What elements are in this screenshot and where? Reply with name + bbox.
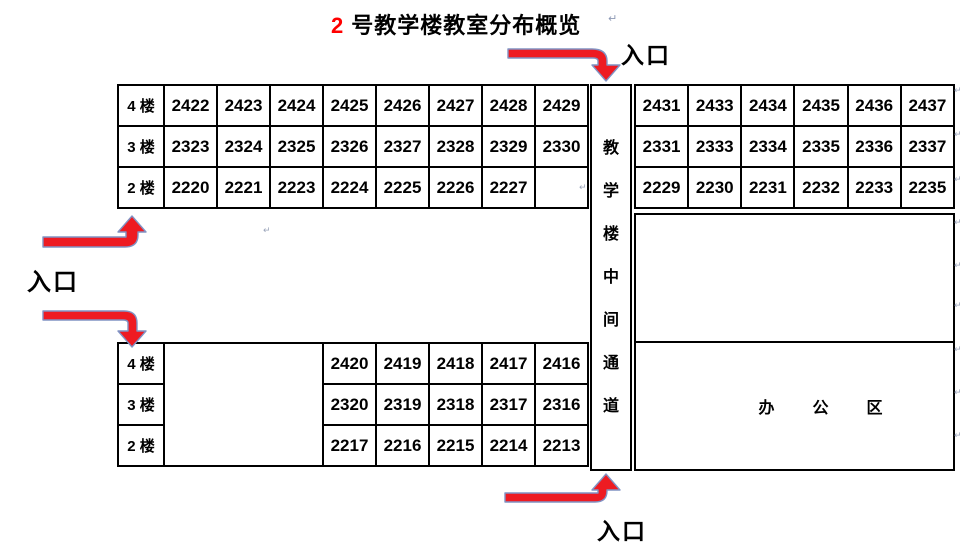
room-cell: 2428 [482,85,535,126]
room-cell: 2427 [429,85,482,126]
room-cell: 2326 [323,126,376,167]
paragraph-mark-icon: ↵ [954,302,962,311]
room-cell: 2336 [848,126,901,167]
room-cell: 2437 [901,85,954,126]
room-cell: 2418 [429,343,482,384]
entrance-label-left: 入口 [27,262,79,297]
room-cell: 2337 [901,126,954,167]
office-char: 公 [812,394,828,418]
entrance-label-bottom: 入口 [597,512,647,546]
page-title: 2号教学楼教室分布概览 [331,8,581,40]
room-cell: 2217 [323,425,376,466]
title-text: 号教学楼教室分布概览 [351,13,581,38]
office-area-box: 办 公 区 [634,341,955,471]
floor-label: 3 楼 [118,126,164,167]
room-cell: 2334 [741,126,794,167]
room-cell: 2419 [376,343,429,384]
room-cell: 2422 [164,85,217,126]
room-cell: 2227 [482,167,535,208]
room-cell: 2328 [429,126,482,167]
room-cell: 2329 [482,126,535,167]
room-cell: 2416 [535,343,588,384]
floor-label: 2 楼 [118,425,164,466]
room-cell: 2317 [482,384,535,425]
room-cell: 2231 [741,167,794,208]
room-cell: 2215 [429,425,482,466]
room-cell: 2323 [164,126,217,167]
room-cell: 2433 [688,85,741,126]
room-cell: 2225 [376,167,429,208]
title-building-number: 2 [331,13,344,38]
paragraph-mark-icon: ↵ [954,87,962,96]
entrance-arrow-top-icon [508,49,620,81]
corridor-char: 道 [603,385,619,428]
corridor-char: 间 [603,299,619,342]
room-cell: 2324 [217,126,270,167]
corridor-char: 楼 [603,213,619,256]
floor-label: 3 楼 [118,384,164,425]
table-row: 2 楼 2220 2221 2223 2224 2225 2226 2227 [118,167,588,208]
room-cell: 2318 [429,384,482,425]
table-row: 4 楼 2420 2419 2418 2417 2416 [118,343,588,384]
top-left-room-table: 4 楼 2422 2423 2424 2425 2426 2427 2428 2… [117,84,589,209]
office-char: 区 [867,394,883,418]
paragraph-mark-icon: ↵ [608,13,617,24]
paragraph-mark-icon: ↵ [954,131,962,140]
floor-label: 2 楼 [118,167,164,208]
room-cell: 2417 [482,343,535,384]
table-row: 2331 2333 2334 2335 2336 2337 [635,126,954,167]
room-cell: 2431 [635,85,688,126]
room-cell: 2436 [848,85,901,126]
floor-label: 4 楼 [118,343,164,384]
room-cell: 2320 [323,384,376,425]
room-cell: 2233 [848,167,901,208]
corridor-char: 教 [603,127,619,170]
paragraph-mark-icon: ↵ [954,176,962,185]
classroom-map-canvas: 2号教学楼教室分布概览 ↵ 入口 入口 入口 4 楼 2422 2423 242… [0,0,962,548]
room-cell: 2221 [217,167,270,208]
room-cell: 2434 [741,85,794,126]
room-cell: 2319 [376,384,429,425]
room-cell: 2220 [164,167,217,208]
room-cell: 2420 [323,343,376,384]
room-cell: 2435 [794,85,847,126]
top-right-room-table: 2431 2433 2434 2435 2436 2437 2331 2333 … [634,84,955,209]
empty-area-box [634,213,955,343]
corridor-char: 通 [603,342,619,385]
paragraph-mark-icon: ↵ [954,219,962,228]
room-cell: 2230 [688,167,741,208]
table-row: 2229 2230 2231 2232 2233 2235 [635,167,954,208]
room-cell: 2327 [376,126,429,167]
room-cell: 2224 [323,167,376,208]
corridor-char: 中 [603,256,619,299]
paragraph-mark-icon: ↵ [954,432,962,441]
central-corridor: 教 学 楼 中 间 通 道 [590,84,632,471]
room-cell: 2335 [794,126,847,167]
room-cell: 2223 [270,167,323,208]
floor-label: 4 楼 [118,85,164,126]
paragraph-mark-icon: ↵ [263,227,271,236]
room-cell: 2232 [794,167,847,208]
room-cell: 2424 [270,85,323,126]
paragraph-mark-icon: ↵ [579,184,587,193]
room-cell: 2333 [688,126,741,167]
paragraph-mark-icon: ↵ [954,262,962,271]
room-cell: 2229 [635,167,688,208]
bottom-left-room-table: 4 楼 2420 2419 2418 2417 2416 3 楼 2320 23… [117,342,589,467]
table-row: 2431 2433 2434 2435 2436 2437 [635,85,954,126]
room-cell: 2226 [429,167,482,208]
room-cell: 2216 [376,425,429,466]
room-cell: 2325 [270,126,323,167]
room-cell: 2235 [901,167,954,208]
table-row: 3 楼 2323 2324 2325 2326 2327 2328 2329 2… [118,126,588,167]
room-cell: 2429 [535,85,588,126]
room-cell: 2331 [635,126,688,167]
room-cell: 2316 [535,384,588,425]
corridor-char: 学 [603,170,619,213]
room-cell: 2213 [535,425,588,466]
empty-area-cell [164,343,323,466]
room-cell: 2330 [535,126,588,167]
entrance-arrow-bottom-icon [505,474,620,502]
room-cell: 2214 [482,425,535,466]
paragraph-mark-icon: ↵ [954,389,962,398]
entrance-label-top: 入口 [621,36,671,70]
entrance-arrow-left-upper-icon [43,216,146,247]
room-cell: 2426 [376,85,429,126]
table-row: 4 楼 2422 2423 2424 2425 2426 2427 2428 2… [118,85,588,126]
room-cell: 2425 [323,85,376,126]
room-cell: 2423 [217,85,270,126]
paragraph-mark-icon: ↵ [954,346,962,355]
office-char: 办 [758,394,774,418]
